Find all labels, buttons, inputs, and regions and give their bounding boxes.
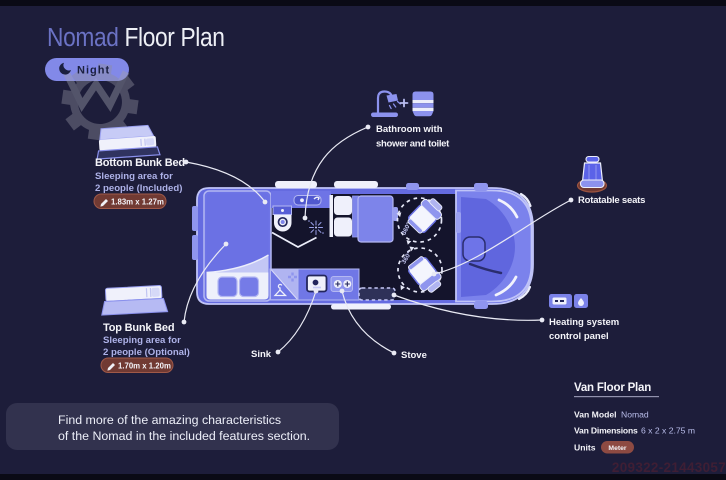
svg-text:2 people (Optional): 2 people (Optional) [103,347,190,358]
svg-text:Van Model: Van Model [574,410,617,420]
svg-text:Sink: Sink [251,349,272,360]
svg-text:6 x 2 x 2.75 m: 6 x 2 x 2.75 m [641,426,695,436]
svg-text:2 people (Included): 2 people (Included) [95,183,182,194]
svg-text:209322-21443057: 209322-21443057 [612,460,726,475]
svg-text:Van Floor Plan: Van Floor Plan [574,382,651,394]
svg-text:Sleeping area for: Sleeping area for [95,171,173,182]
svg-text:1.83m x 1.27m: 1.83m x 1.27m [111,197,164,206]
svg-text:Bathroom with: Bathroom with [376,124,443,135]
svg-text:Nomad: Nomad [621,410,649,420]
svg-text:Night: Night [77,65,110,77]
svg-text:Bottom Bunk Bed: Bottom Bunk Bed [95,157,185,169]
svg-text:1.70m x 1.20m: 1.70m x 1.20m [118,361,171,370]
svg-text:Van Dimensions: Van Dimensions [574,426,638,436]
svg-text:Top Bunk Bed: Top Bunk Bed [103,322,174,334]
svg-text:shower and toilet: shower and toilet [376,139,450,150]
svg-text:of the Nomad in the included f: of the Nomad in the included features se… [58,429,310,443]
svg-text:Rotatable seats: Rotatable seats [578,195,645,206]
svg-text:Meter: Meter [608,445,626,452]
svg-text:Sleeping area for: Sleeping area for [103,335,181,346]
svg-text:control panel: control panel [549,331,609,342]
svg-text:Nomad Floor Plan: Nomad Floor Plan [47,24,225,53]
svg-text:Stove: Stove [401,350,427,361]
svg-text:Find more of the amazing chara: Find more of the amazing characteristics [58,413,281,427]
svg-text:Heating system: Heating system [549,317,619,328]
svg-text:Units: Units [574,443,596,453]
